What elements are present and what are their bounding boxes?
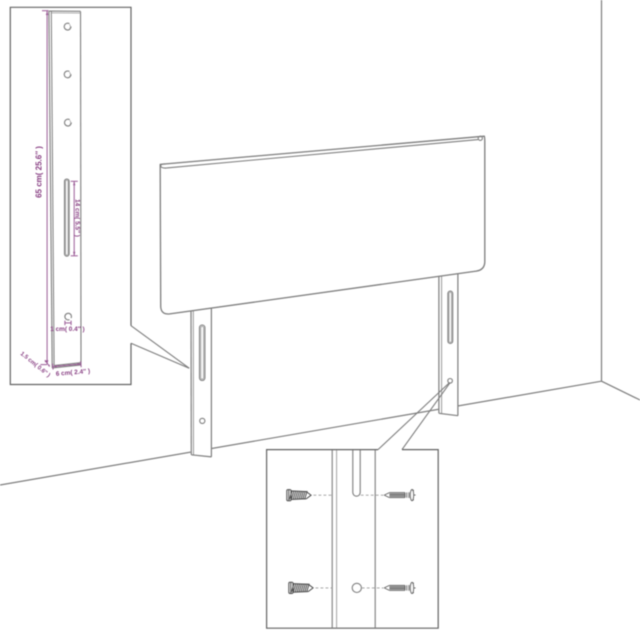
svg-text:1 cm( 0.4″ ): 1 cm( 0.4″ ): [50, 326, 84, 333]
svg-text:65 cm( 25.6″ ): 65 cm( 25.6″ ): [35, 146, 44, 198]
svg-text:14 cm( 5.5″ ): 14 cm( 5.5″ ): [73, 199, 80, 237]
